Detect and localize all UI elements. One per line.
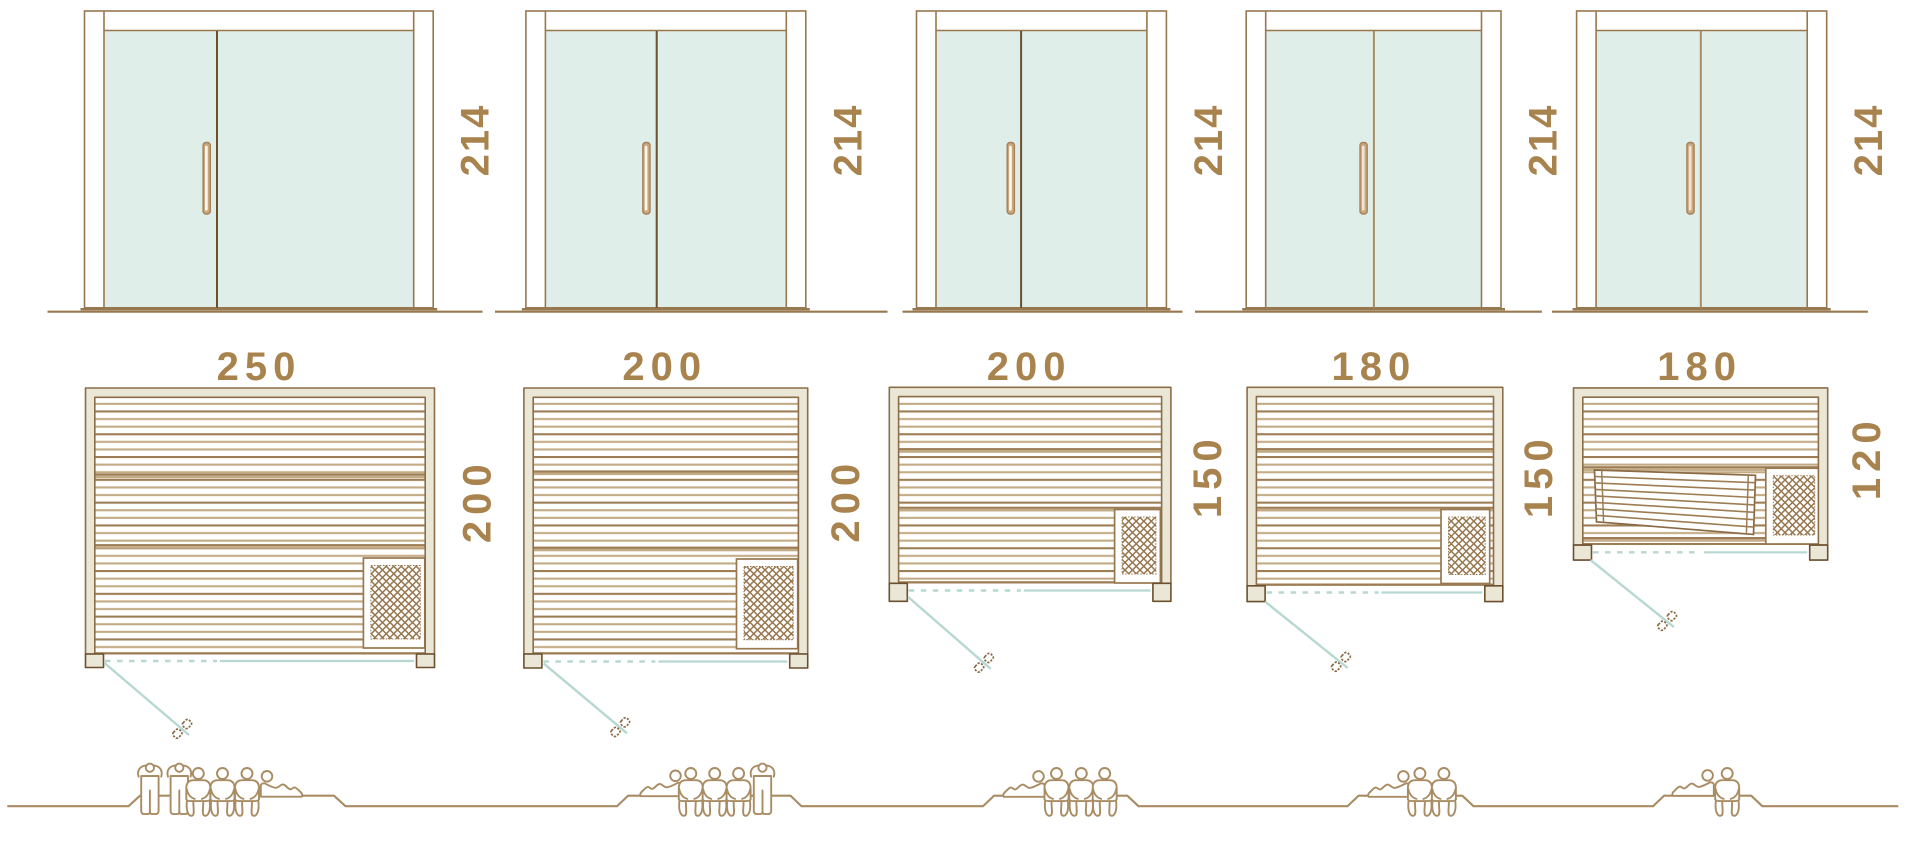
svg-text:200: 200 [987, 345, 1072, 389]
svg-text:180: 180 [1332, 345, 1417, 389]
svg-text:214: 214 [454, 104, 498, 177]
svg-text:200: 200 [622, 345, 707, 389]
svg-text:214: 214 [826, 104, 870, 177]
svg-text:214: 214 [1847, 104, 1891, 177]
svg-text:214: 214 [1522, 104, 1566, 177]
svg-text:200: 200 [824, 458, 868, 543]
svg-text:214: 214 [1187, 104, 1231, 177]
svg-text:200: 200 [456, 458, 500, 543]
svg-text:150: 150 [1186, 433, 1230, 518]
svg-text:250: 250 [217, 345, 302, 389]
svg-text:180: 180 [1657, 345, 1742, 389]
svg-text:150: 150 [1517, 433, 1561, 518]
svg-text:120: 120 [1845, 415, 1889, 500]
